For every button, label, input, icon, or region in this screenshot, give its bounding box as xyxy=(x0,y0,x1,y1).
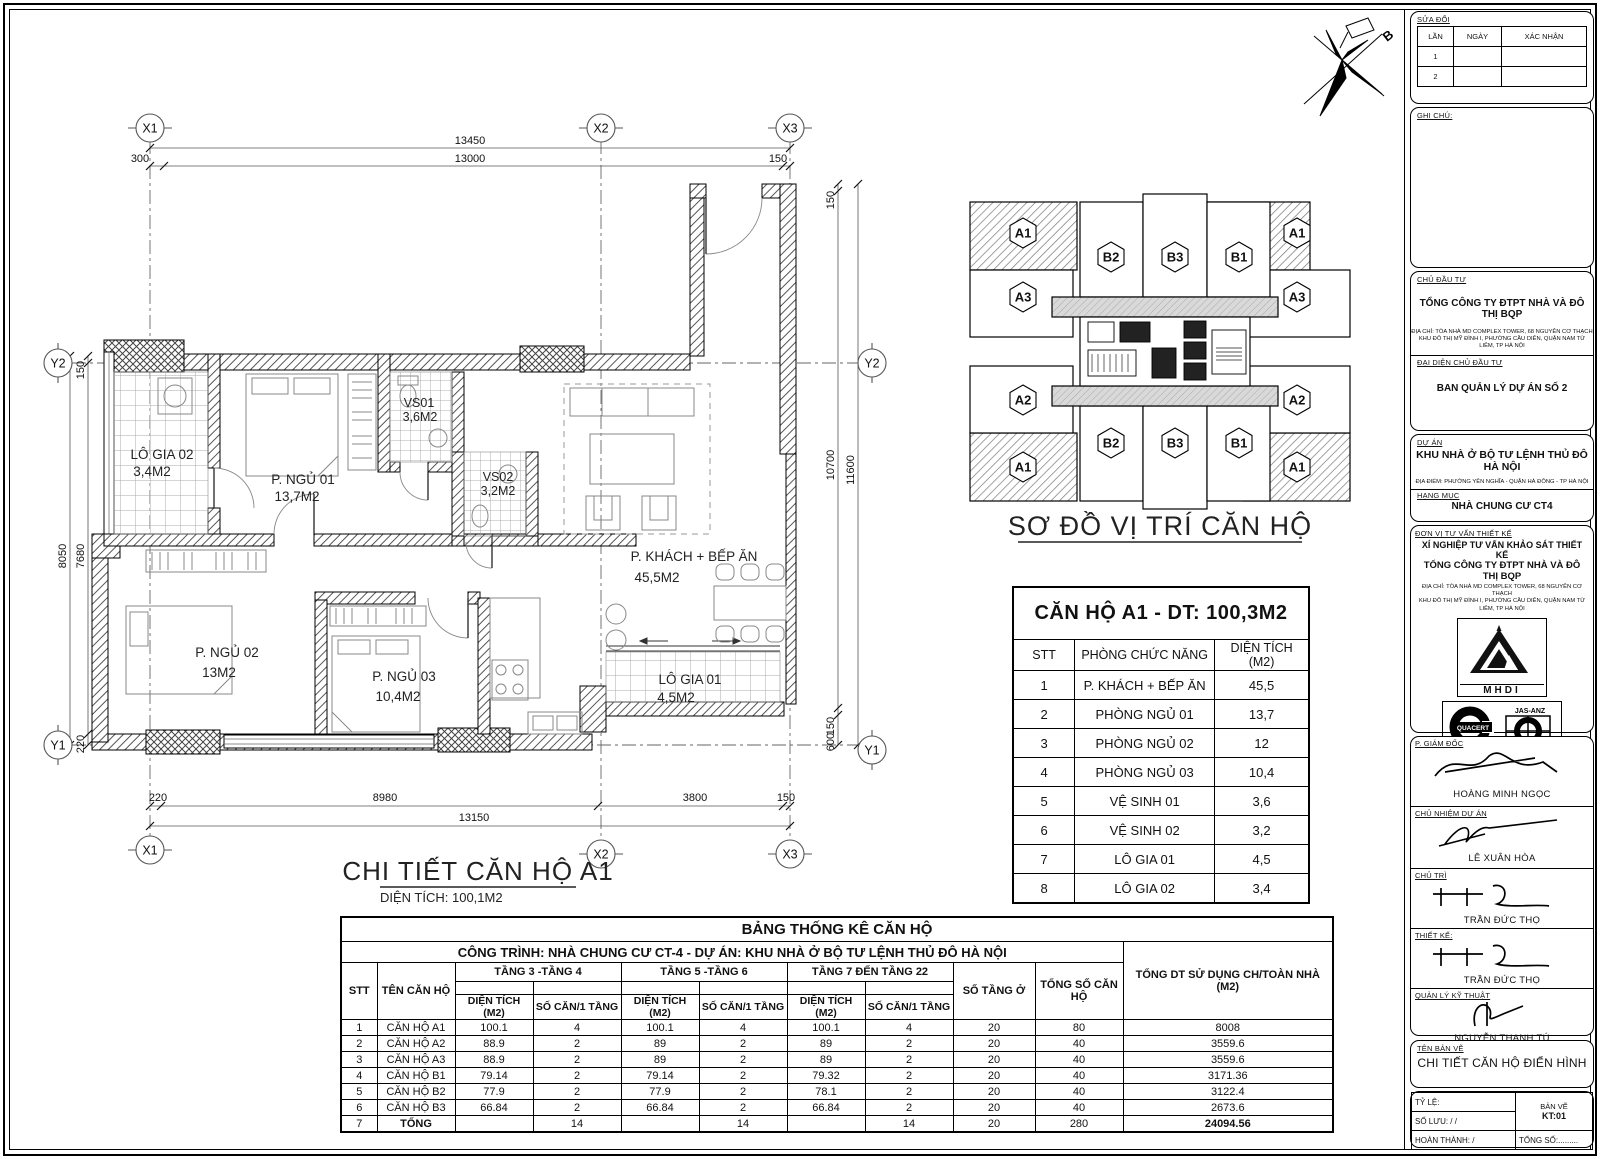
table-cell: 2 xyxy=(533,1052,621,1068)
column-header: TẦNG 5 -TẦNG 6 xyxy=(621,963,787,982)
unit-label: A1 xyxy=(1289,460,1306,475)
revision-box: SỬA ĐỔI LẦN NGÀY XÁC NHẬN 12 xyxy=(1410,11,1594,104)
dim-text: 220 xyxy=(75,735,87,753)
grid-label: Y2 xyxy=(864,357,879,371)
column-header: DIỆN TÍCH (M2) xyxy=(455,995,533,1020)
project-box: DỰ ÁN KHU NHÀ Ở BỘ TƯ LỆNH THỦ ĐÔ HÀ NỘI… xyxy=(1410,434,1594,522)
table-cell: 2 xyxy=(699,1100,787,1116)
table-row: 2 xyxy=(1418,67,1587,87)
table-cell: 2 xyxy=(865,1068,953,1084)
table-cell: 2 xyxy=(865,1100,953,1116)
table-cell: 78.1 xyxy=(787,1084,865,1100)
table-cell: 12 xyxy=(1215,729,1309,758)
signature xyxy=(1415,940,1565,970)
plan-title-group: CHI TIẾT CĂN HỘ A1 DIỆN TÍCH: 100,1M2 xyxy=(342,856,613,905)
jas-anz-label: JAS-ANZ xyxy=(1515,708,1546,715)
table-cell: TỔNG xyxy=(377,1116,455,1133)
table-cell: 13,7 xyxy=(1215,700,1309,729)
signature xyxy=(1415,748,1565,784)
consultant-box: ĐƠN VỊ TƯ VẤN THIẾT KẾ XÍ NGHIỆP TƯ VẤN … xyxy=(1410,525,1594,733)
key-plan-title-group: SƠ ĐỒ VỊ TRÍ CĂN HỘ xyxy=(1008,510,1312,542)
consultant-label: ĐƠN VỊ TƯ VẤN THIẾT KẾ xyxy=(1415,529,1589,538)
table-cell: CĂN HỘ A2 xyxy=(377,1036,455,1052)
table-cell: 7 xyxy=(1013,845,1075,874)
table-cell: 6 xyxy=(1013,816,1075,845)
notes-label: GHI CHÚ: xyxy=(1417,111,1587,120)
dim-text: 220 xyxy=(149,792,167,804)
consultant-address-2: KHU ĐÔ THỊ MỸ ĐÌNH I, PHƯỜNG CẦU DIỄN, Q… xyxy=(1415,598,1589,612)
total-label: TỔNG SỐ:......... xyxy=(1516,1131,1593,1150)
unit-label: A3 xyxy=(1289,290,1306,305)
column-header: TỔNG SỐ CĂN HỘ xyxy=(1035,963,1123,1020)
unit-label: B3 xyxy=(1167,436,1184,451)
table-row: 3CĂN HỘ A388.9289289220403559.6 xyxy=(341,1052,1333,1068)
sheet-label: BẢN VẼ xyxy=(1519,1102,1589,1111)
stats-subtitle: CÔNG TRÌNH: NHÀ CHUNG CƯ CT-4 - DỰ ÁN: K… xyxy=(341,942,1123,963)
column-header: TÊN CĂN HỘ xyxy=(377,963,455,1020)
director-name: HOÀNG MINH NGỌC xyxy=(1415,789,1589,800)
drawing-name: CHI TIẾT CĂN HỘ ĐIỂN HÌNH xyxy=(1417,1056,1587,1070)
table-cell: 66.84 xyxy=(787,1100,865,1116)
room-area: 13M2 xyxy=(202,665,236,680)
sheet-info-box: TỶ LỆ: BẢN VẼ KT:01 SỐ LƯU: / / HOÀN THÀ… xyxy=(1410,1091,1594,1148)
plan-title: CHI TIẾT CĂN HỘ A1 xyxy=(342,856,613,886)
table-cell: 6 xyxy=(341,1100,377,1116)
key-plan: A1 A1 A1 A1 A3 A3 A2 A2 B2 B3 B1 B2 B3 B… xyxy=(930,180,1360,548)
table-row: 6VỆ SINH 023,2 xyxy=(1013,816,1309,845)
table-cell: 7 xyxy=(341,1116,377,1133)
table-cell: PHÒNG NGỦ 03 xyxy=(1075,758,1215,787)
table-cell: 4 xyxy=(865,1020,953,1036)
dim-text: 150 xyxy=(75,361,87,379)
table-row: 1CĂN HỘ A1100.14100.14100.1420808008 xyxy=(341,1020,1333,1036)
unit-label: B3 xyxy=(1167,250,1184,265)
project-name: KHU NHÀ Ở BỘ TƯ LỆNH THỦ ĐÔ HÀ NỘI xyxy=(1411,449,1593,473)
lead-label: CHỦ TRÌ xyxy=(1415,871,1589,880)
north-arrow: B xyxy=(1290,12,1400,122)
plan-subtitle: DIỆN TÍCH: 100,1M2 xyxy=(380,890,503,905)
dim-text: 13450 xyxy=(455,135,486,147)
table-cell: 280 xyxy=(1035,1116,1123,1133)
column-header: DIỆN TÍCH (M2) xyxy=(1215,640,1309,671)
table-cell: 20 xyxy=(953,1036,1035,1052)
table-cell: 1 xyxy=(341,1020,377,1036)
column-header: SỐ TẦNG Ở xyxy=(953,963,1035,1020)
table-cell: 88.9 xyxy=(455,1036,533,1052)
dim-text: 150 xyxy=(777,792,795,804)
unit-label: A3 xyxy=(1015,290,1032,305)
table-cell xyxy=(455,1116,533,1133)
table-cell: CĂN HỘ A1 xyxy=(377,1020,455,1036)
doors xyxy=(214,198,762,638)
revision-table: LẦN NGÀY XÁC NHẬN 12 xyxy=(1417,26,1587,87)
manager-label: CHỦ NHIỆM DỰ ÁN xyxy=(1415,809,1589,818)
manager-section: CHỦ NHIỆM DỰ ÁN LÊ XUÂN HÒA xyxy=(1411,806,1593,868)
empty-cell xyxy=(533,982,621,995)
category-label: HẠNG MỤC xyxy=(1417,491,1587,500)
column-header: SỐ CĂN/1 TẦNG xyxy=(533,995,621,1020)
table-cell: 2 xyxy=(1013,700,1075,729)
grid-label: Y1 xyxy=(50,739,65,753)
dim-text: 150 xyxy=(825,717,837,735)
table-cell: 20 xyxy=(953,1052,1035,1068)
mhdi-label: MHDI xyxy=(1460,684,1544,696)
table-cell: 3559.6 xyxy=(1123,1036,1333,1052)
table-cell: 3171.36 xyxy=(1123,1068,1333,1084)
table-cell xyxy=(787,1116,865,1133)
project-address: ĐỊA ĐIỂM: PHƯỜNG YÊN NGHĨA - QUẬN HÀ ĐÔN… xyxy=(1411,479,1593,486)
table-cell: 3,4 xyxy=(1215,874,1309,904)
table-cell: 2 xyxy=(533,1084,621,1100)
lead-name: TRẦN ĐỨC THỌ xyxy=(1415,915,1589,926)
director-section: P. GIÁM ĐỐC HOÀNG MINH NGỌC xyxy=(1411,737,1593,806)
room-label: P. NGỦ 01 xyxy=(271,472,335,487)
table-cell: 2 xyxy=(699,1052,787,1068)
drawing-sheet: LÔ GIA 02 3,4M2 P. NGỦ 01 13,7M2 VS01 3,… xyxy=(0,0,1600,1159)
table-cell xyxy=(621,1116,699,1133)
empty-cell xyxy=(787,982,865,995)
column-header: TẦNG 3 -TẦNG 4 xyxy=(455,963,621,982)
key-plan-title: SƠ ĐỒ VỊ TRÍ CĂN HỘ xyxy=(1008,510,1312,541)
dim-text: 600 xyxy=(825,733,837,751)
column-header: STT xyxy=(1013,640,1075,671)
table-row: 1P. KHÁCH + BẾP ĂN45,5 xyxy=(1013,671,1309,700)
column-header: TỔNG DT SỬ DỤNG CH/TOÀN NHÀ (M2) xyxy=(1123,942,1333,1020)
balcony-sliding-door xyxy=(606,638,780,651)
table-cell: VỆ SINH 01 xyxy=(1075,787,1215,816)
table-cell: 8 xyxy=(1013,874,1075,904)
sheet-number: KT:01 xyxy=(1519,1111,1589,1121)
room-label: P. NGỦ 03 xyxy=(372,669,436,684)
table-row: 4PHÒNG NGỦ 0310,4 xyxy=(1013,758,1309,787)
empty-cell xyxy=(699,982,787,995)
unit-label: A1 xyxy=(1015,460,1032,475)
designer-name: TRẦN ĐỨC THỌ xyxy=(1415,975,1589,986)
project-label: DỰ ÁN xyxy=(1411,438,1593,447)
table-cell: 2 xyxy=(865,1084,953,1100)
empty-cell xyxy=(455,982,533,995)
table-row: 3PHÒNG NGỦ 0212 xyxy=(1013,729,1309,758)
table-cell: 77.9 xyxy=(621,1084,699,1100)
table-cell: 4 xyxy=(341,1068,377,1084)
table-cell: 2 xyxy=(699,1068,787,1084)
room-area: 3,4M2 xyxy=(133,464,171,479)
column-header: STT xyxy=(341,963,377,1020)
column-header: DIỆN TÍCH (M2) xyxy=(787,995,865,1020)
table-cell: 3 xyxy=(1013,729,1075,758)
room-area: 13,7M2 xyxy=(274,489,319,504)
unit-label: A1 xyxy=(1015,226,1032,241)
column-header: DIỆN TÍCH (M2) xyxy=(621,995,699,1020)
floor-plan: LÔ GIA 02 3,4M2 P. NGỦ 01 13,7M2 VS01 3,… xyxy=(0,0,940,910)
table-cell: 45,5 xyxy=(1215,671,1309,700)
dim-text: 13000 xyxy=(455,153,486,165)
investor-name: TỔNG CÔNG TY ĐTPT NHÀ VÀ ĐÔ THỊ BQP xyxy=(1411,298,1593,320)
table-cell: LÔ GIA 01 xyxy=(1075,845,1215,874)
table-row: 4CĂN HỘ B179.14279.14279.32220403171.36 xyxy=(341,1068,1333,1084)
table-cell: 3122.4 xyxy=(1123,1084,1333,1100)
table-cell: 89 xyxy=(787,1052,865,1068)
room-area: 3,2M2 xyxy=(481,484,516,498)
category-name: NHÀ CHUNG CƯ CT4 xyxy=(1417,501,1587,512)
signature xyxy=(1415,1000,1565,1028)
table-cell: 40 xyxy=(1035,1084,1123,1100)
table-cell: 80 xyxy=(1035,1020,1123,1036)
grid-label: X3 xyxy=(782,848,797,862)
stats-title: BẢNG THỐNG KÊ CĂN HỘ xyxy=(341,917,1333,942)
drawing-name-box: TÊN BẢN VẼ CHI TIẾT CĂN HỘ ĐIỂN HÌNH xyxy=(1410,1040,1594,1088)
table-cell: 40 xyxy=(1035,1100,1123,1116)
room-area: 3,6M2 xyxy=(403,410,438,424)
table-cell: PHÒNG NGỦ 01 xyxy=(1075,700,1215,729)
mhdi-logo: MHDI xyxy=(1457,618,1547,697)
consultant-address-1: ĐỊA CHỈ: TÒA NHÀ MD COMPLEX TOWER, 68 NG… xyxy=(1415,584,1589,598)
column-header: TẦNG 7 ĐẾN TẦNG 22 xyxy=(787,963,953,982)
table-cell: 10,4 xyxy=(1215,758,1309,787)
manager-name: LÊ XUÂN HÒA xyxy=(1415,853,1589,864)
table-cell: 24094.56 xyxy=(1123,1116,1333,1133)
empty-cell xyxy=(865,982,953,995)
table-cell: 89 xyxy=(787,1036,865,1052)
unit-label: A2 xyxy=(1015,393,1032,408)
table-row: 6CĂN HỘ B366.84266.84266.84220402673.6 xyxy=(341,1100,1333,1116)
designer-section: THIẾT KẾ: TRẦN ĐỨC THỌ xyxy=(1411,928,1593,988)
tech-manager-label: QUẢN LÝ KỸ THUẬT xyxy=(1415,991,1589,1000)
complete-label: HOÀN THÀNH: / xyxy=(1412,1131,1516,1150)
unit-label: A1 xyxy=(1289,226,1306,241)
table-cell: 40 xyxy=(1035,1052,1123,1068)
table-row: 7TỔNG1414142028024094.56 xyxy=(341,1116,1333,1133)
table-cell: CĂN HỘ B3 xyxy=(377,1100,455,1116)
scale-label: TỶ LỆ: xyxy=(1412,1093,1516,1112)
table-cell: 5 xyxy=(1013,787,1075,816)
signature xyxy=(1415,880,1565,910)
lead-section: CHỦ TRÌ TRẦN ĐỨC THỌ xyxy=(1411,868,1593,928)
table-cell xyxy=(1502,47,1587,67)
notes-box: GHI CHÚ: xyxy=(1410,107,1594,268)
table-cell: 14 xyxy=(699,1116,787,1133)
table-cell: 79.14 xyxy=(621,1068,699,1084)
apartment-area-table: CĂN HỘ A1 - DT: 100,3M2 STT PHÒNG CHỨC N… xyxy=(1012,586,1310,904)
dim-text: 8980 xyxy=(373,792,397,804)
table-cell: 3 xyxy=(341,1052,377,1068)
column-header: PHÒNG CHỨC NĂNG xyxy=(1075,640,1215,671)
room-label: VS02 xyxy=(483,470,514,484)
director-label: P. GIÁM ĐỐC xyxy=(1415,739,1589,748)
table-cell: 4 xyxy=(699,1020,787,1036)
dim-text: 3800 xyxy=(683,792,707,804)
table-cell: 4 xyxy=(1013,758,1075,787)
table-cell: 14 xyxy=(865,1116,953,1133)
room-label: P. KHÁCH + BẾP ĂN xyxy=(631,549,758,564)
unit-label: B2 xyxy=(1103,250,1120,265)
table-cell: 40 xyxy=(1035,1036,1123,1052)
investor-box: CHỦ ĐẦU TƯ TỔNG CÔNG TY ĐTPT NHÀ VÀ ĐÔ T… xyxy=(1410,271,1594,431)
table-cell: 2 xyxy=(341,1036,377,1052)
table-cell xyxy=(1454,67,1502,87)
drawing-name-label: TÊN BẢN VẼ xyxy=(1417,1044,1587,1053)
table-cell: 2 xyxy=(699,1036,787,1052)
sheet-info-table: TỶ LỆ: BẢN VẼ KT:01 SỐ LƯU: / / HOÀN THÀ… xyxy=(1411,1092,1593,1150)
table-cell: CĂN HỘ B2 xyxy=(377,1084,455,1100)
room-label: VS01 xyxy=(404,396,435,410)
signatures-box: P. GIÁM ĐỐC HOÀNG MINH NGỌC CHỦ NHIỆM DỰ… xyxy=(1410,736,1594,1036)
designer-label: THIẾT KẾ: xyxy=(1415,931,1589,940)
table-cell: 5 xyxy=(341,1084,377,1100)
table-cell: 100.1 xyxy=(455,1020,533,1036)
table-row: 5VỆ SINH 013,6 xyxy=(1013,787,1309,816)
column-header: SỐ CĂN/1 TẦNG xyxy=(865,995,953,1020)
table-cell: LÔ GIA 02 xyxy=(1075,874,1215,904)
unit-label: A2 xyxy=(1289,393,1306,408)
room-area: 45,5M2 xyxy=(634,570,679,585)
table-cell: CĂN HỘ B1 xyxy=(377,1068,455,1084)
table-cell: P. KHÁCH + BẾP ĂN xyxy=(1075,671,1215,700)
table-cell: 2673.6 xyxy=(1123,1100,1333,1116)
column-header: XÁC NHẬN xyxy=(1502,27,1587,47)
table-cell: 20 xyxy=(953,1084,1035,1100)
table-cell: 100.1 xyxy=(621,1020,699,1036)
table-cell: 40 xyxy=(1035,1068,1123,1084)
table-cell: 20 xyxy=(953,1020,1035,1036)
tech-manager-section: QUẢN LÝ KỸ THUẬT NGUYỄN THANH TÚ xyxy=(1411,988,1593,1047)
table-row: 5CĂN HỘ B277.9277.9278.1220403122.4 xyxy=(341,1084,1333,1100)
dim-text: 150 xyxy=(825,191,837,209)
table-row: 2PHÒNG NGỦ 0113,7 xyxy=(1013,700,1309,729)
table-cell: 66.84 xyxy=(455,1100,533,1116)
table-row: 7LÔ GIA 014,5 xyxy=(1013,845,1309,874)
archive-label: SỐ LƯU: / / xyxy=(1412,1112,1516,1131)
table-cell: 3559.6 xyxy=(1123,1052,1333,1068)
revision-label: SỬA ĐỔI xyxy=(1417,15,1587,24)
column-header: NGÀY xyxy=(1454,27,1502,47)
room-label: LÔ GIA 01 xyxy=(658,672,721,687)
table-cell: 4 xyxy=(533,1020,621,1036)
investor-label: CHỦ ĐẦU TƯ xyxy=(1411,275,1593,284)
table-cell: 77.9 xyxy=(455,1084,533,1100)
dim-text: 150 xyxy=(769,153,787,165)
grid-label: Y2 xyxy=(50,357,65,371)
table-row: 2CĂN HỘ A288.9289289220403559.6 xyxy=(341,1036,1333,1052)
table-row: 8LÔ GIA 023,4 xyxy=(1013,874,1309,904)
table-cell: 2 xyxy=(699,1084,787,1100)
table-cell xyxy=(1454,47,1502,67)
sheet-number-cell: BẢN VẼ KT:01 xyxy=(1516,1093,1593,1131)
room-area: 4,5M2 xyxy=(657,690,695,705)
table-cell: 2 xyxy=(865,1052,953,1068)
signature xyxy=(1415,818,1565,848)
grid-label: X1 xyxy=(142,844,157,858)
grid-label: X1 xyxy=(142,122,157,136)
table-cell: 100.1 xyxy=(787,1020,865,1036)
table-cell: 2 xyxy=(533,1100,621,1116)
dim-text: 7680 xyxy=(75,544,87,568)
unit-label: B1 xyxy=(1231,250,1248,265)
table-cell: 3,6 xyxy=(1215,787,1309,816)
consultant-name-2: TỔNG CÔNG TY ĐTPT NHÀ VÀ ĐÔ THỊ BQP xyxy=(1415,560,1589,582)
room-label: P. NGỦ 02 xyxy=(195,645,259,660)
dim-text: 300 xyxy=(131,153,149,165)
table-cell: CĂN HỘ A3 xyxy=(377,1052,455,1068)
quacert-label: QUACERT xyxy=(1457,725,1489,732)
dim-text: 10700 xyxy=(825,450,837,481)
table-cell: 2 xyxy=(865,1036,953,1052)
table-cell: 88.9 xyxy=(455,1052,533,1068)
dim-text: 8050 xyxy=(57,544,69,568)
investor-address-2: KHU ĐÔ THỊ MỸ ĐÌNH I, PHƯỜNG CẦU DIỄN, Q… xyxy=(1411,336,1593,350)
table-cell: VỆ SINH 02 xyxy=(1075,816,1215,845)
table-cell: 2 xyxy=(533,1068,621,1084)
empty-cell xyxy=(621,982,699,995)
table-cell: 79.32 xyxy=(787,1068,865,1084)
table-cell: 89 xyxy=(621,1036,699,1052)
titleblock-separator xyxy=(1404,9,1405,1150)
table-cell: 2 xyxy=(1418,67,1454,87)
grid-label: X3 xyxy=(782,122,797,136)
table-cell: 14 xyxy=(533,1116,621,1133)
column-header: SỐ CĂN/1 TẦNG xyxy=(699,995,787,1020)
representative-label: ĐẠI DIỆN CHỦ ĐẦU TƯ xyxy=(1417,358,1587,367)
table-row: 1 xyxy=(1418,47,1587,67)
table-cell: 79.14 xyxy=(455,1068,533,1084)
grid-label: X2 xyxy=(593,122,608,136)
grid-label: Y1 xyxy=(864,744,879,758)
dim-text: 11600 xyxy=(845,455,857,485)
table-cell: 3,2 xyxy=(1215,816,1309,845)
table-cell: 1 xyxy=(1418,47,1454,67)
table-cell: 20 xyxy=(953,1068,1035,1084)
table-cell: 1 xyxy=(1013,671,1075,700)
apartment-table-title: CĂN HỘ A1 - DT: 100,3M2 xyxy=(1013,587,1309,640)
table-cell: 4,5 xyxy=(1215,845,1309,874)
column-header: LẦN xyxy=(1418,27,1454,47)
room-label: LÔ GIA 02 xyxy=(130,447,193,462)
unit-label: B1 xyxy=(1231,436,1248,451)
room-area: 10,4M2 xyxy=(375,689,420,704)
table-cell: 8008 xyxy=(1123,1020,1333,1036)
consultant-name-1: XÍ NGHIỆP TƯ VẤN KHẢO SÁT THIẾT KẾ xyxy=(1415,540,1589,560)
stats-table: BẢNG THỐNG KÊ CĂN HỘ CÔNG TRÌNH: NHÀ CHU… xyxy=(340,916,1332,1133)
table-cell: 66.84 xyxy=(621,1100,699,1116)
table-cell: PHÒNG NGỦ 02 xyxy=(1075,729,1215,758)
table-cell: 20 xyxy=(953,1116,1035,1133)
table-cell xyxy=(1502,67,1587,87)
representative-name: BAN QUẢN LÝ DỰ ÁN SỐ 2 xyxy=(1417,383,1587,394)
table-cell: 20 xyxy=(953,1100,1035,1116)
table-cell: 2 xyxy=(533,1036,621,1052)
dim-text: 13150 xyxy=(459,812,490,824)
north-label: B xyxy=(1380,27,1397,45)
table-cell: 89 xyxy=(621,1052,699,1068)
unit-label: B2 xyxy=(1103,436,1120,451)
